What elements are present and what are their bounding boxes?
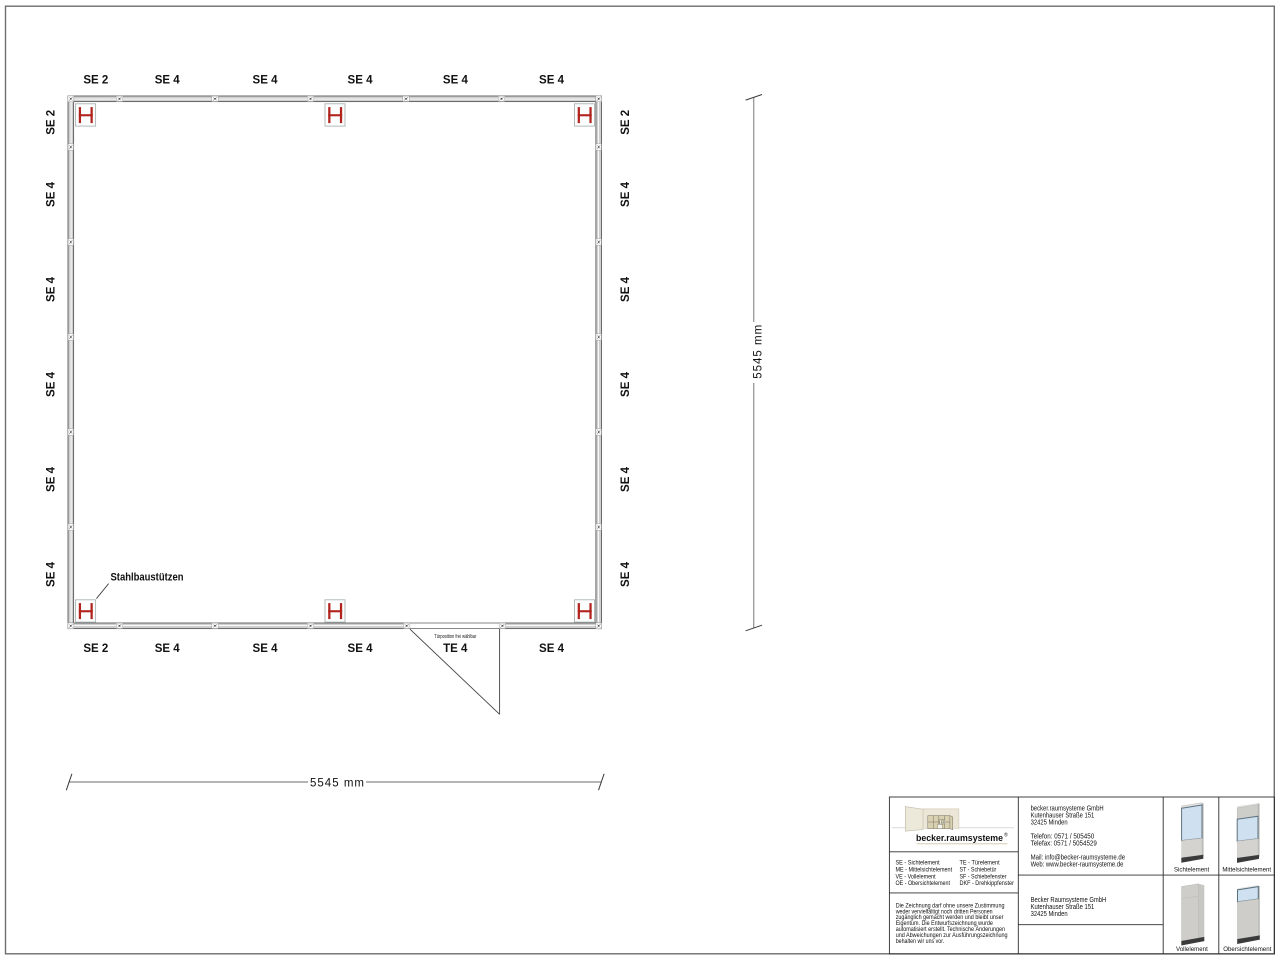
- svg-text:32425 Minden: 32425 Minden: [1031, 820, 1068, 827]
- svg-text:SE 4: SE 4: [46, 181, 58, 207]
- svg-text:SE 4: SE 4: [620, 371, 632, 397]
- svg-text:SE 4: SE 4: [443, 74, 469, 86]
- svg-text:®: ®: [1004, 832, 1008, 839]
- svg-text:SE 4: SE 4: [620, 466, 632, 492]
- svg-text:SE 4: SE 4: [620, 181, 632, 207]
- svg-text:SE 4: SE 4: [539, 643, 565, 655]
- svg-text:Web: www.becker-raumsysteme.de: Web: www.becker-raumsysteme.de: [1031, 861, 1124, 868]
- svg-text:TE 4: TE 4: [443, 643, 468, 655]
- svg-text:SE 4: SE 4: [348, 643, 374, 655]
- svg-text:SE 2: SE 2: [46, 110, 58, 135]
- svg-text:Kutenhauser Straße 151: Kutenhauser Straße 151: [1031, 904, 1095, 911]
- svg-text:Vollelement: Vollelement: [1176, 946, 1208, 953]
- svg-text:SE 4: SE 4: [620, 561, 632, 587]
- svg-text:SE 2: SE 2: [620, 110, 632, 135]
- svg-text:Sichtelement: Sichtelement: [1174, 866, 1209, 873]
- svg-text:becker.raumsysteme GmbH: becker.raumsysteme GmbH: [1031, 805, 1104, 812]
- svg-text:Mittelsichtelement: Mittelsichtelement: [1222, 866, 1271, 873]
- svg-text:SE 4: SE 4: [539, 74, 565, 86]
- svg-text:Telefon: 0571 / 505450: Telefon: 0571 / 505450: [1031, 833, 1095, 840]
- svg-text:SE 4: SE 4: [46, 371, 58, 397]
- svg-text:5545 mm: 5545 mm: [752, 325, 764, 379]
- svg-text:SE 4: SE 4: [46, 561, 58, 587]
- svg-text:SE 4: SE 4: [155, 643, 181, 655]
- svg-text:Becker Raumsysteme GmbH: Becker Raumsysteme GmbH: [1031, 897, 1107, 904]
- svg-text:Telefax: 0571 / 5054529: Telefax: 0571 / 5054529: [1031, 840, 1097, 847]
- svg-text:Stahlbaustützen: Stahlbaustützen: [111, 572, 184, 584]
- svg-text:Obersichtelement: Obersichtelement: [1223, 946, 1271, 953]
- svg-text:DKF - Drehkippfenster: DKF - Drehkippfenster: [960, 880, 1015, 887]
- svg-text:SE 4: SE 4: [348, 74, 374, 86]
- svg-text:SE 4: SE 4: [620, 276, 632, 302]
- svg-text:automatisiert erstellt. Techni: automatisiert erstellt. Technische Änder…: [896, 926, 1005, 933]
- svg-text:Kutenhauser Straße 151: Kutenhauser Straße 151: [1031, 813, 1095, 820]
- svg-text:SE 4: SE 4: [155, 74, 181, 86]
- svg-text:behalten wir uns vor.: behalten wir uns vor.: [896, 939, 945, 945]
- svg-text:becker.raumsysteme: becker.raumsysteme: [916, 833, 1003, 843]
- svg-text:5545 mm: 5545 mm: [310, 777, 364, 789]
- svg-text:OE - Obersichtelement: OE - Obersichtelement: [896, 880, 951, 887]
- svg-text:SE 4: SE 4: [46, 276, 58, 302]
- svg-text:SE 2: SE 2: [83, 643, 108, 655]
- svg-text:SE 4: SE 4: [253, 74, 279, 86]
- svg-text:32425 Minden: 32425 Minden: [1031, 911, 1068, 918]
- svg-text:Türposition frei wählbar: Türposition frei wählbar: [434, 634, 476, 640]
- svg-text:SE 4: SE 4: [253, 643, 279, 655]
- svg-text:SE 2: SE 2: [83, 74, 108, 86]
- svg-text:SE 4: SE 4: [46, 466, 58, 492]
